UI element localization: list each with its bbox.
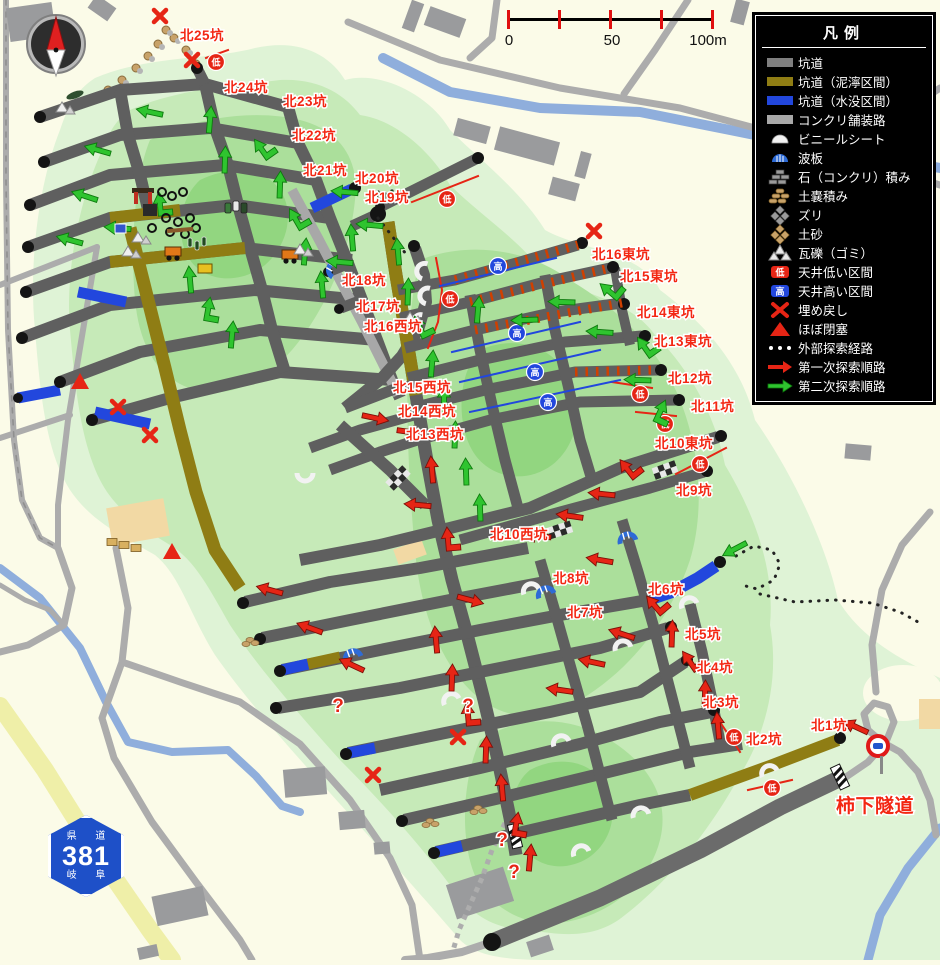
tunnel-portal bbox=[16, 332, 28, 344]
tunnel-gray-icon bbox=[762, 53, 798, 73]
blocked-icon bbox=[762, 319, 798, 339]
cart-wheel bbox=[174, 255, 179, 260]
crate-sprite bbox=[131, 545, 141, 552]
tunnel-portal bbox=[24, 199, 36, 211]
tunnel-label: 北9坑 bbox=[676, 482, 712, 498]
scale-tick bbox=[609, 10, 612, 29]
drum-sprite bbox=[115, 224, 126, 233]
tunnel-portal bbox=[20, 286, 32, 298]
building bbox=[151, 886, 208, 926]
bottle-sprite bbox=[195, 241, 199, 250]
ceiling-badge-text: 高 bbox=[543, 397, 552, 408]
rubble-trail-dot bbox=[149, 56, 155, 62]
legend-item-label: 石（コンクリ）積み bbox=[798, 167, 911, 186]
no-entry-sign-icon bbox=[866, 734, 890, 758]
stone-stack-icon bbox=[762, 167, 798, 187]
legend-item-label: 波板 bbox=[798, 148, 823, 167]
tunnel-portal bbox=[38, 156, 50, 168]
ceiling-badge-text: 低 bbox=[634, 389, 644, 400]
stall-post-sprite bbox=[148, 192, 152, 204]
tunnel-portal bbox=[673, 394, 685, 406]
bottle-sprite bbox=[202, 237, 206, 246]
tunnel-label: 北20坑 bbox=[355, 170, 399, 186]
tunnel-label: 北5坑 bbox=[685, 626, 721, 642]
tunnel-portal bbox=[714, 556, 726, 568]
legend-item: 石（コンクリ）積み bbox=[762, 167, 926, 186]
shelf-sprite bbox=[143, 204, 157, 216]
tunnel-label: 北13西坑 bbox=[406, 426, 464, 442]
legend-item-label: 土嚢積み bbox=[798, 186, 848, 205]
bottle-sprite bbox=[188, 238, 192, 247]
legend-rows: 坑道坑道（泥濘区間）坑道（水没区間）コンクリ舗装路ビニールシート波板石（コンクリ… bbox=[762, 53, 926, 395]
building bbox=[494, 126, 560, 165]
building bbox=[283, 766, 327, 798]
legend-item: 第二次探索順路 bbox=[762, 376, 926, 395]
rubble-trail-dot bbox=[159, 44, 165, 50]
tunnel-portal bbox=[428, 847, 440, 859]
ceiling-badge-text: 低 bbox=[694, 459, 704, 470]
legend-item: 波板 bbox=[762, 148, 926, 167]
legend-item-label: 第二次探索順路 bbox=[798, 376, 886, 395]
scale-tick bbox=[660, 10, 663, 29]
building bbox=[548, 177, 580, 202]
tunnel-portal bbox=[274, 665, 286, 677]
scale-bar: 0 50 100m bbox=[500, 6, 724, 54]
sandbag-stack-icon bbox=[762, 186, 798, 206]
legend-item-label: 埋め戻し bbox=[798, 300, 848, 319]
tunnel-portal bbox=[340, 748, 352, 760]
tunnel-label: 北14東坑 bbox=[637, 304, 695, 320]
tunnel-label: 北4坑 bbox=[697, 659, 733, 675]
backfill-icon bbox=[762, 300, 798, 320]
tunnel-portal bbox=[22, 241, 34, 253]
legend-title: 凡例 bbox=[762, 20, 926, 48]
tunnel-concrete-icon bbox=[762, 110, 798, 130]
tunnel-label: 北10西坑 bbox=[490, 526, 548, 542]
tunnel-water-icon bbox=[762, 91, 798, 111]
ceiling-badge-text: 低 bbox=[210, 57, 220, 68]
excavator-sprite bbox=[198, 264, 212, 273]
legend-item-label: ズリ bbox=[798, 205, 823, 224]
tunnel-portal bbox=[54, 376, 66, 388]
building bbox=[424, 6, 467, 38]
svg-text:低: 低 bbox=[774, 266, 784, 277]
tunnel-label: 北3坑 bbox=[703, 694, 739, 710]
tunnel-label: 柿下隧道 bbox=[836, 794, 914, 817]
legend-item: ビニールシート bbox=[762, 129, 926, 148]
tunnel-portal bbox=[715, 430, 727, 442]
tunnel-label: 北7坑 bbox=[567, 604, 603, 620]
building bbox=[137, 944, 159, 960]
legend-item-label: ビニールシート bbox=[798, 129, 886, 148]
legend-item-label: 外部探索経路 bbox=[798, 338, 873, 357]
tunnel-w bbox=[348, 748, 375, 753]
tunnel-label: 北19坑 bbox=[365, 189, 409, 205]
barrel-sprite bbox=[241, 203, 247, 213]
ceiling-badge-text: 低 bbox=[766, 783, 776, 794]
tunnel-portal bbox=[396, 815, 408, 827]
arrow-green-icon bbox=[762, 376, 798, 396]
tunnel-label: 北2坑 bbox=[746, 731, 782, 747]
tunnel-mud-icon bbox=[762, 72, 798, 92]
stall-post-sprite bbox=[134, 192, 138, 204]
crate-sprite bbox=[119, 542, 129, 549]
tunnel-w bbox=[436, 846, 462, 852]
legend-item: ほぼ閉塞 bbox=[762, 319, 926, 338]
tunnel-w bbox=[282, 664, 308, 670]
legend-item-label: 天井低い区間 bbox=[798, 262, 873, 281]
scale-label-start: 0 bbox=[505, 32, 513, 49]
tunnel-portal bbox=[834, 732, 846, 744]
tunnel-label: 北18坑 bbox=[342, 272, 386, 288]
sandbag-stack-icon bbox=[422, 822, 430, 827]
tunnel-portal bbox=[607, 261, 619, 273]
field-patch bbox=[919, 699, 940, 729]
ceiling-high-icon: 高 bbox=[762, 281, 798, 301]
tunnel-portal bbox=[34, 111, 46, 123]
legend-item: 瓦礫（ゴミ） bbox=[762, 243, 926, 262]
building bbox=[374, 841, 391, 854]
scale-tick bbox=[558, 10, 561, 29]
legend-item: コンクリ舗装路 bbox=[762, 110, 926, 129]
dosha-icon bbox=[762, 224, 798, 244]
tunnel-label: 北6坑 bbox=[648, 581, 684, 597]
ceiling-badge-text: 高 bbox=[493, 261, 502, 272]
tunnel-label: 北25坑 bbox=[180, 27, 224, 43]
zuri-icon bbox=[762, 205, 798, 225]
legend-panel: 凡例 坑道坑道（泥濘区間）坑道（水没区間）コンクリ舗装路ビニールシート波板石（コ… bbox=[752, 12, 936, 405]
ceiling-badge-text: 低 bbox=[441, 194, 451, 205]
tunnel-portal bbox=[655, 364, 667, 376]
cart-wheel bbox=[166, 255, 171, 260]
legend-item-label: 第一次探索順路 bbox=[798, 357, 886, 376]
tunnel-portal bbox=[13, 393, 23, 403]
tunnel-label: 北12坑 bbox=[668, 370, 712, 386]
legend-item-label: コンクリ舗装路 bbox=[798, 110, 886, 129]
route-sign-number: 381 bbox=[62, 842, 110, 870]
ceiling-badge-text: 高 bbox=[530, 367, 539, 378]
tunnel-label: 北14西坑 bbox=[398, 403, 456, 419]
ceiling-low-icon: 低 bbox=[762, 262, 798, 282]
tunnel-label: 北22坑 bbox=[292, 127, 336, 143]
legend-item: 低天井低い区間 bbox=[762, 262, 926, 281]
legend-item: 外部探索経路 bbox=[762, 338, 926, 357]
tunnel-portal bbox=[237, 597, 249, 609]
cart-wheel bbox=[283, 258, 288, 263]
gareki-icon bbox=[762, 243, 798, 263]
tunnel-portal bbox=[86, 414, 98, 426]
backfill-x-icon bbox=[154, 10, 166, 22]
ceiling-badge-text: 高 bbox=[512, 328, 521, 339]
building bbox=[844, 443, 871, 460]
tunnel-label: 北11坑 bbox=[691, 398, 734, 414]
tunnel-label: 北23坑 bbox=[283, 93, 327, 109]
sandbag-stack-icon bbox=[431, 821, 439, 826]
rubble-trail-dot bbox=[167, 30, 173, 36]
tunnel-label: 北13東坑 bbox=[654, 333, 712, 349]
dotted-path-icon bbox=[762, 338, 798, 358]
sign-car-glyph bbox=[873, 743, 883, 749]
tunnel-portal bbox=[483, 933, 501, 951]
legend-item-label: 瓦礫（ゴミ） bbox=[798, 243, 873, 262]
legend-item: 高天井高い区間 bbox=[762, 281, 926, 300]
legend-item-label: 坑道（泥濘区間） bbox=[798, 72, 898, 91]
scale-tick bbox=[711, 10, 714, 29]
tunnel-label: 北8坑 bbox=[553, 570, 589, 586]
legend-item: 土嚢積み bbox=[762, 186, 926, 205]
sign-pole bbox=[880, 756, 883, 774]
legend-item: 第一次探索順路 bbox=[762, 357, 926, 376]
legend-item: 坑道（水没区間） bbox=[762, 91, 926, 110]
legend-item: 土砂 bbox=[762, 224, 926, 243]
tunnel-label: 北16東坑 bbox=[592, 246, 650, 262]
scale-tick bbox=[507, 10, 510, 29]
tunnel-portal bbox=[334, 304, 344, 314]
arrow-red-icon bbox=[762, 357, 798, 377]
legend-item: 坑道（泥濘区間） bbox=[762, 72, 926, 91]
barrel-sprite bbox=[225, 203, 231, 213]
legend-item-label: 坑道 bbox=[798, 53, 823, 72]
mine-cart-sprite bbox=[165, 247, 181, 256]
tunnel-label: 北10東坑 bbox=[655, 435, 713, 451]
ceiling-badge-text: 低 bbox=[444, 294, 454, 305]
tunnel-label: 北17坑 bbox=[356, 298, 400, 314]
tunnel-label: 北15東坑 bbox=[620, 268, 678, 284]
question-mark: ? bbox=[332, 696, 344, 717]
cart-wheel bbox=[291, 258, 296, 263]
sandbag-stack-icon bbox=[251, 640, 259, 645]
legend-item: ズリ bbox=[762, 205, 926, 224]
tunnel-label: 北15西坑 bbox=[393, 379, 451, 395]
legend-item-label: 天井高い区間 bbox=[798, 281, 873, 300]
building bbox=[402, 0, 424, 32]
tunnel-portal bbox=[270, 702, 282, 714]
legend-item: 坑道 bbox=[762, 53, 926, 72]
rubble-trail-dot bbox=[137, 68, 143, 74]
road bbox=[470, 0, 497, 58]
ceiling-badge-text: 低 bbox=[728, 732, 738, 743]
sandbag-stack-icon bbox=[479, 808, 487, 813]
crate-sprite bbox=[107, 539, 117, 546]
corrugated-icon bbox=[762, 148, 798, 168]
mine-map-stage: 低低低低低低低低高高高高????北25坑北24坑北23坑北22坑北21坑北20坑… bbox=[0, 0, 940, 960]
sandbag-stack-icon bbox=[242, 641, 250, 646]
building bbox=[730, 0, 750, 25]
tunnel-label: 北16西坑 bbox=[364, 318, 422, 334]
tunnel-portal bbox=[472, 152, 484, 164]
backfill-x-icon bbox=[588, 225, 600, 237]
legend-item-label: 坑道（水没区間） bbox=[798, 91, 898, 110]
scale-label-mid: 50 bbox=[604, 32, 621, 49]
building bbox=[574, 151, 591, 179]
route-sign-bottom-label: 岐 阜 bbox=[67, 870, 114, 881]
question-mark: ? bbox=[496, 830, 508, 851]
legend-item-label: 土砂 bbox=[798, 224, 823, 243]
tunnel-label: 北1坑 bbox=[811, 717, 847, 733]
tunnel-label: 北21坑 bbox=[303, 162, 347, 178]
tunnel-m bbox=[308, 657, 340, 664]
question-mark: ? bbox=[462, 696, 474, 717]
question-mark: ? bbox=[508, 862, 520, 883]
barrel-sprite bbox=[233, 201, 239, 211]
tunnel-portal bbox=[408, 240, 420, 252]
building bbox=[338, 810, 365, 830]
legend-item-label: ほぼ閉塞 bbox=[798, 319, 848, 338]
scale-label-end: 100m bbox=[689, 32, 727, 49]
vinyl-icon bbox=[762, 129, 798, 149]
compass-rose-icon bbox=[10, 2, 100, 92]
tunnel-label: 北24坑 bbox=[224, 79, 268, 95]
sandbag-stack-icon bbox=[470, 809, 478, 814]
legend-item: 埋め戻し bbox=[762, 300, 926, 319]
svg-text:高: 高 bbox=[775, 285, 784, 296]
